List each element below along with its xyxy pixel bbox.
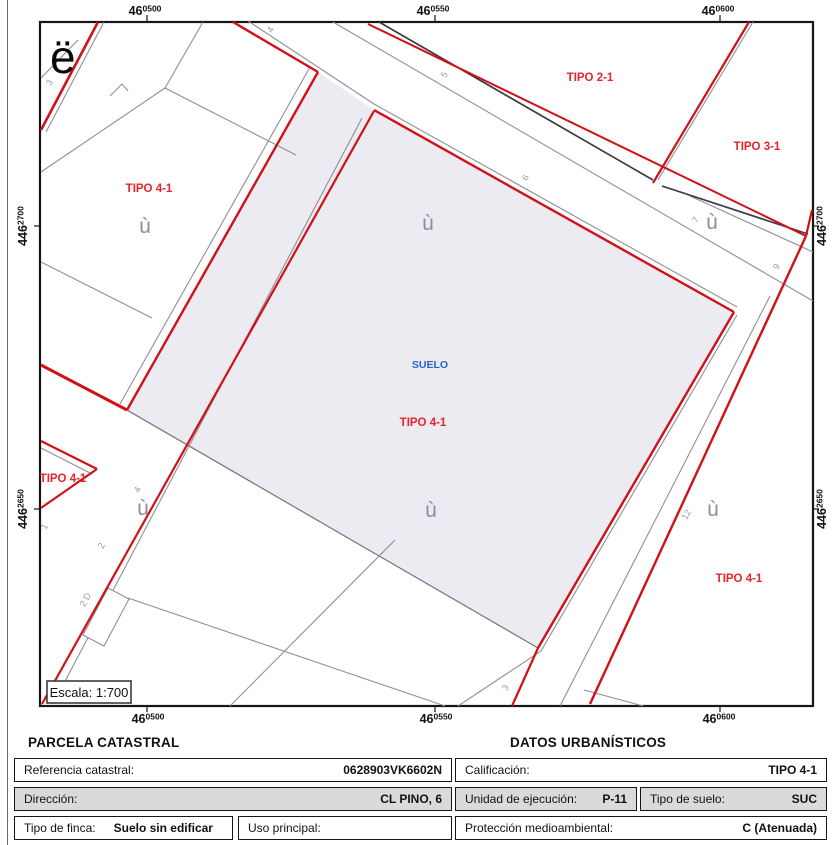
row-proteccion-medioambiental: Protección medioambiental: C (Atenuada) (455, 816, 827, 840)
row-uso-principal: Uso principal: (238, 816, 452, 840)
svg-text:460600: 460600 (703, 712, 736, 727)
field-value: TIPO 4-1 (768, 763, 817, 777)
row-tipo-finca: Tipo de finca: Suelo sin edificar (14, 816, 233, 840)
field-value: SUC (792, 792, 817, 806)
grid-marker-icon: ù (422, 212, 434, 235)
scale-text: Escala: 1:700 (50, 685, 129, 700)
row-referencia-catastral: Referencia catastral: 0628903VK6602N (14, 758, 452, 782)
field-label: Tipo de finca: (24, 821, 96, 835)
zone-label-lower-left: TIPO 4-1 (40, 473, 87, 485)
cadastral-map[interactable]: ë ù ù ù ù ù ù 3 4 5 6 7 9 4 2 1 2 D 12 3… (0, 0, 835, 730)
zone-label-upper-left: TIPO 4-1 (126, 183, 173, 195)
field-value: Suelo sin edificar (114, 821, 213, 835)
grid-marker-icon: ù (707, 498, 719, 521)
grid-marker-icon: ù (425, 499, 437, 522)
field-label: Unidad de ejecución: (465, 792, 577, 806)
cadastral-report-page: ë ù ù ù ù ù ù 3 4 5 6 7 9 4 2 1 2 D 12 3… (0, 0, 835, 845)
zone-label-top-right-a: TIPO 2-1 (567, 72, 614, 84)
svg-text:4462650: 4462650 (16, 489, 31, 529)
svg-text:460550: 460550 (420, 712, 453, 727)
grid-marker-icon: ù (137, 497, 149, 520)
field-label: Protección medioambiental: (465, 821, 613, 835)
svg-text:460600: 460600 (702, 4, 735, 19)
svg-text:4462700: 4462700 (16, 206, 31, 246)
svg-text:4462650: 4462650 (815, 489, 830, 529)
zone-label-top-right-b: TIPO 3-1 (734, 141, 781, 153)
datos-section-title: DATOS URBANÍSTICOS (510, 735, 666, 750)
field-value: CL PINO, 6 (380, 792, 442, 806)
field-label: Tipo de suelo: (650, 792, 725, 806)
parcela-section-title: PARCELA CATASTRAL (28, 735, 179, 750)
field-label: Calificación: (465, 763, 530, 777)
field-value: 0628903VK6602N (343, 763, 442, 777)
scale-indicator: Escala: 1:700 (47, 681, 131, 703)
zone-label-main: TIPO 4-1 (400, 417, 447, 429)
row-tipo-suelo: Tipo de suelo: SUC (640, 787, 827, 811)
suelo-label: SUELO (412, 359, 448, 371)
row-calificacion: Calificación: TIPO 4-1 (455, 758, 827, 782)
field-label: Dirección: (24, 792, 77, 806)
grid-marker-icon: ù (139, 215, 151, 238)
svg-text:460500: 460500 (132, 712, 165, 727)
field-value: P-11 (602, 792, 627, 806)
field-label: Uso principal: (248, 821, 321, 835)
row-direccion: Dirección: CL PINO, 6 (14, 787, 452, 811)
north-arrow-icon: ë (50, 31, 76, 83)
field-label: Referencia catastral: (24, 763, 134, 777)
svg-text:4462700: 4462700 (815, 206, 830, 246)
field-value: C (Atenuada) (742, 821, 817, 835)
row-unidad-ejecucion: Unidad de ejecución: P-11 (455, 787, 637, 811)
zone-label-lower-right: TIPO 4-1 (716, 573, 763, 585)
svg-text:460500: 460500 (129, 4, 162, 19)
svg-text:460550: 460550 (417, 4, 450, 19)
grid-marker-icon: ù (706, 211, 718, 234)
